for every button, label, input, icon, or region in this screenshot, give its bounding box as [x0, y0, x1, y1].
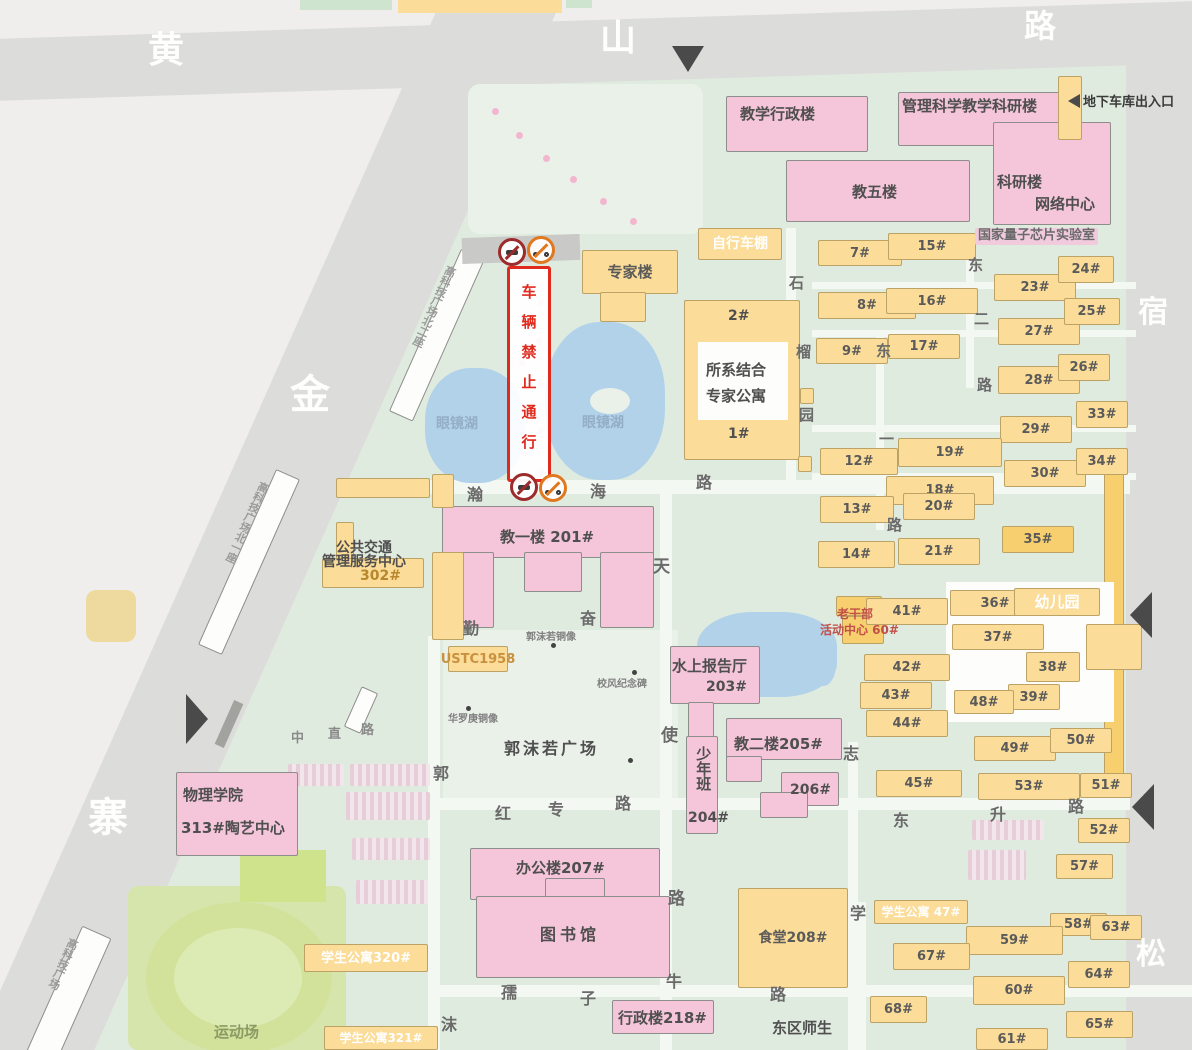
laoganbu-label-1: 老干部 — [837, 608, 873, 622]
dorm-57-label: 57# — [1070, 860, 1099, 873]
bldg-expert-a: 专家楼 — [582, 250, 678, 294]
entrance-plaza — [468, 84, 703, 234]
bldg-label-admin218: 行政楼218# — [618, 1010, 707, 1027]
dorm-68: 68# — [870, 996, 927, 1023]
dorm-26-label: 26# — [1070, 361, 1099, 374]
bldg-ustc1958: USTC1958 — [448, 646, 508, 672]
roadchar-zhi: 志 — [843, 745, 859, 763]
dorm-35-label: 35# — [1024, 533, 1053, 546]
blossom — [516, 132, 523, 139]
dorm-68-label: 68# — [884, 1003, 913, 1016]
bldg-water-hall-stem — [688, 702, 714, 740]
roadchar-lu-hanhai: 路 — [696, 474, 712, 492]
bldg-stu-apt-321: 学生公寓321# — [324, 1026, 438, 1050]
no-motorcycle-icon — [527, 236, 555, 264]
roadchar-yi: 一 — [879, 431, 894, 448]
bldg-label-shaonianban: 少年班 — [694, 746, 711, 791]
blossom — [543, 155, 550, 162]
blob-a — [800, 388, 814, 404]
dorm-64: 64# — [1068, 961, 1130, 988]
dorm-30: 30# — [1004, 460, 1086, 487]
dorm-63: 63# — [1090, 915, 1142, 940]
roadchar-dong3: 东 — [893, 812, 909, 830]
roadchar-shi2: 使 — [661, 727, 678, 747]
roadchar-zhi2: 直 — [328, 728, 341, 743]
road-label-su: 宿 — [1138, 296, 1168, 331]
bldg-stu-apt-47-label: 学生公寓 47# — [882, 906, 961, 918]
dorm-24-label: 24# — [1072, 263, 1101, 276]
strip-top — [1058, 76, 1082, 140]
roadchar-liu: 榴 — [796, 344, 811, 361]
bldg-jiao1-mid — [524, 552, 582, 592]
dorm-61: 61# — [976, 1028, 1048, 1050]
bldg-label-204: 204# — [688, 810, 729, 826]
road-label-lu-top: 路 — [1024, 8, 1056, 45]
bldg-bikeshed: 自行车棚 — [698, 228, 782, 260]
dorm-36-label: 36# — [981, 597, 1010, 610]
court-stripe-3 — [346, 792, 430, 820]
dorm-26: 26# — [1058, 354, 1110, 381]
dorm-20-label: 20# — [925, 500, 954, 513]
dorm-30-label: 30# — [1031, 467, 1060, 480]
road-label-huang: 黄 — [148, 30, 184, 71]
dorm-16-label: 16# — [918, 295, 947, 308]
dorm-48: 48# — [954, 690, 1014, 714]
apt-label-1: 1# — [728, 426, 749, 442]
dorm-8-label: 8# — [857, 299, 877, 312]
roadchar-dong1: 东 — [876, 343, 891, 360]
roadchar-lu-donger: 路 — [977, 377, 992, 394]
bldg-bikeshed-label: 自行车棚 — [712, 237, 768, 251]
dorm-17-label: 17# — [910, 340, 939, 353]
bldg-jiao1-right — [600, 552, 654, 628]
dorm-34: 34# — [1076, 448, 1128, 475]
roadchar-lu-ruziniu: 路 — [770, 986, 786, 1004]
no-motorcycle-icon — [539, 474, 567, 502]
statue-label-hualuogeng: 华罗庚铜像 — [448, 714, 498, 726]
roadchar-fen: 奋 — [580, 610, 596, 628]
dorm-34-label: 34# — [1088, 455, 1117, 468]
dorm-50-label: 50# — [1067, 734, 1096, 747]
no-car-icon — [510, 473, 538, 501]
dorm-52-label: 52# — [1090, 824, 1119, 837]
bldg-label-physics: 物理学院 — [183, 787, 243, 804]
dorm-9-label: 9# — [842, 345, 862, 358]
roadchar-ru: 孺 — [501, 984, 517, 1002]
bldg-302-b — [432, 474, 454, 508]
roadchar-niu: 牛 — [666, 973, 682, 991]
dorm-53: 53# — [978, 773, 1080, 800]
bldg-canteen208-label: 食堂208# — [759, 931, 828, 945]
dorm-65: 65# — [1066, 1011, 1133, 1038]
dorm-42-label: 42# — [893, 661, 922, 674]
dorm-7-label: 7# — [850, 247, 870, 260]
dorm-27-label: 27# — [1025, 325, 1054, 338]
bldg-stu-apt-47: 学生公寓 47# — [874, 900, 968, 924]
roadchar-hong: 红 — [495, 805, 511, 823]
path-dorm-2 — [812, 330, 1136, 337]
bldg-label-302: 302# — [360, 568, 401, 584]
dorm-65-label: 65# — [1085, 1018, 1114, 1031]
dorm-53-label: 53# — [1015, 780, 1044, 793]
sliver-green-1 — [300, 0, 392, 10]
roadchar-lu-hongzhuan: 路 — [615, 795, 631, 813]
roadchar-lu-dongsheng: 路 — [1068, 798, 1084, 816]
bldg-expert-apt-inner — [698, 342, 788, 420]
dorm-23-label: 23# — [1021, 281, 1050, 294]
dorm-13-label: 13# — [843, 503, 872, 516]
dorm-64-label: 64# — [1085, 968, 1114, 981]
court-stripe-6 — [972, 820, 1044, 840]
bldg-physics — [176, 772, 298, 856]
dorm-12-label: 12# — [845, 455, 874, 468]
bldg-library-conn — [545, 878, 605, 898]
wheel-glyph — [544, 252, 549, 257]
roadchar-tian: 天 — [653, 558, 670, 578]
bldg-label-jiao1: 教一楼 201# — [500, 529, 594, 546]
bldg-stu-apt-320-label: 学生公寓320# — [321, 952, 411, 965]
dorm-29-label: 29# — [1022, 423, 1051, 436]
east-district-label: 东区师生 — [772, 1020, 832, 1037]
dorm-51-label: 51# — [1092, 779, 1121, 792]
roadchar-lu-dongyi: 路 — [887, 517, 902, 534]
dorm-14: 14# — [818, 541, 895, 568]
dorm-38-label: 38# — [1039, 661, 1068, 674]
bldg-label-research: 科研楼 — [997, 174, 1042, 191]
dorm-43-label: 43# — [882, 689, 911, 702]
dorm-67-label: 67# — [917, 950, 946, 963]
basketball-courts — [240, 850, 326, 902]
dorm-44-label: 44# — [893, 717, 922, 730]
dorm-49: 49# — [974, 736, 1056, 761]
bldg-ustc1958-label: USTC1958 — [441, 653, 516, 666]
dorm-28-label: 28# — [1025, 374, 1054, 387]
lake-label-east: 眼镜湖 — [582, 415, 624, 431]
no-car-icon — [498, 238, 526, 266]
lake-label-west: 眼镜湖 — [436, 416, 478, 432]
court-stripe-2 — [350, 764, 430, 786]
apt-label-2: 2# — [728, 308, 749, 324]
bldg-canteen208: 食堂208# — [738, 888, 848, 988]
court-stripe-7 — [968, 850, 1026, 880]
dorm-41: 41# — [866, 598, 948, 625]
roadchar-lu-zhongzhi: 路 — [361, 724, 374, 739]
sports-field-label: 运动场 — [214, 1024, 259, 1041]
dorm-21-label: 21# — [925, 545, 954, 558]
dorm-12: 12# — [820, 448, 898, 475]
dorm-35: 35# — [1002, 526, 1074, 553]
bldg-label-206: 206# — [790, 782, 831, 798]
dorm-61-label: 61# — [998, 1033, 1027, 1046]
dorm-43: 43# — [860, 682, 932, 709]
dorm-51: 51# — [1080, 773, 1132, 798]
dorm-39-label: 39# — [1020, 691, 1049, 704]
bldg-label-mgmt-science: 管理科学教学科研楼 — [902, 98, 1037, 115]
path-xue — [856, 902, 866, 1050]
road-label-shan: 山 — [600, 18, 636, 59]
dorm-57: 57# — [1056, 854, 1113, 879]
dorm-63-label: 63# — [1102, 921, 1131, 934]
roadchar-lu-tianshi: 路 — [668, 890, 685, 910]
roadchar-yuan: 园 — [799, 407, 814, 424]
bldg-label-203: 203# — [706, 679, 747, 695]
laoganbu-label-2: 活动中心 60# — [820, 624, 899, 638]
dorm-38: 38# — [1026, 652, 1080, 682]
bldg-label-network: 网络中心 — [1035, 196, 1095, 213]
bldg-label-office207: 办公楼207# — [516, 860, 605, 877]
track-infield — [174, 928, 302, 1028]
bldg-jiao2-wing — [726, 756, 762, 782]
blossom — [600, 198, 607, 205]
sliver-yellow — [398, 0, 562, 13]
bldg-label-library: 图书馆 — [540, 926, 600, 944]
dorm-58-label: 58# — [1064, 918, 1093, 931]
dorm-60-label: 60# — [1005, 984, 1034, 997]
dorm-50: 50# — [1050, 728, 1112, 753]
sliver-green-2 — [566, 0, 592, 8]
dorm-59: 59# — [966, 926, 1063, 955]
dorm-60: 60# — [973, 976, 1065, 1005]
bldg-stu-apt-320: 学生公寓320# — [304, 944, 428, 972]
roadchar-dong2: 东 — [968, 257, 983, 274]
susong-road — [1126, 52, 1192, 1050]
bldg-302-a — [336, 478, 430, 498]
dorm-33-label: 33# — [1088, 408, 1117, 421]
bldg-stu-apt-321-label: 学生公寓321# — [339, 1032, 422, 1044]
roadchar-zhong: 中 — [291, 732, 304, 747]
statue-dot — [551, 643, 556, 648]
blossom — [570, 176, 577, 183]
campus-map: 专家楼自行车棚食堂208#USTC195836#幼儿园37#38#39#48#7… — [0, 0, 1192, 1050]
dorm-19: 19# — [898, 438, 1002, 467]
dorm-29: 29# — [1000, 416, 1072, 443]
dorm-49-label: 49# — [1001, 742, 1030, 755]
plaza-label-guomoruo: 郭沫若广场 — [504, 740, 599, 758]
dorm-33: 33# — [1076, 401, 1128, 428]
dorm-41-label: 41# — [893, 605, 922, 618]
small-pond — [808, 638, 836, 686]
dorm-16: 16# — [886, 288, 978, 314]
gate-marker-north — [672, 46, 704, 72]
dorm-45-label: 45# — [905, 777, 934, 790]
statue-dot — [466, 706, 471, 711]
dorm-15-label: 15# — [918, 240, 947, 253]
roadchar-zi: 子 — [580, 990, 596, 1008]
dorm-24: 24# — [1058, 256, 1114, 283]
dorm-15: 15# — [888, 233, 976, 260]
bldg-expert-a-label: 专家楼 — [607, 265, 652, 280]
dorm-39: 39# — [1008, 684, 1060, 710]
gate-marker-west — [186, 694, 208, 744]
no-vehicle-sign: 车辆禁止通行 — [507, 266, 551, 482]
dorm-19-label: 19# — [936, 446, 965, 459]
quantum-lab-label: 国家量子芯片实验室 — [975, 228, 1098, 245]
bldg-label-water-hall: 水上报告厅 — [672, 658, 747, 675]
statue-dot — [632, 670, 637, 675]
road-label-zhai: 寨 — [88, 795, 128, 841]
statue-dot — [628, 758, 633, 763]
blossom — [630, 218, 637, 225]
lake-island — [590, 388, 630, 414]
court-stripe-5 — [356, 880, 428, 904]
bldg-label-jiao5: 教五楼 — [852, 184, 897, 201]
blob-b — [798, 456, 812, 472]
apt-label-line2: 专家公寓 — [706, 388, 766, 405]
bldg-label-jiao2: 教二楼205# — [734, 736, 823, 753]
statue-label-xiaofeng: 校风纪念碑 — [597, 679, 647, 691]
blossom — [492, 108, 499, 115]
dorm-37-label: 37# — [984, 631, 1013, 644]
bldg-label-313: 313#陶艺中心 — [181, 820, 285, 837]
roadchar-han: 瀚 — [467, 486, 483, 504]
apt-label-line1: 所系结合 — [706, 362, 766, 379]
gate-marker-east-1 — [1130, 592, 1152, 638]
roadchar-qin: 勤 — [463, 620, 479, 638]
dorm-48-label: 48# — [970, 696, 999, 709]
roadchar-er: 二 — [974, 311, 989, 328]
no-vehicle-sign-text: 车辆禁止通行 — [519, 284, 540, 464]
dorm-37: 37# — [952, 624, 1044, 650]
dorm-14-label: 14# — [842, 548, 871, 561]
dorm-44: 44# — [866, 710, 948, 737]
roadchar-shi: 石 — [789, 275, 804, 292]
wheel-glyph — [556, 490, 561, 495]
statue-label-guomoruo: 郭沫若铜像 — [526, 632, 576, 644]
dorm-25-label: 25# — [1078, 305, 1107, 318]
dorm-20: 20# — [903, 493, 975, 520]
gate-marker-east-2 — [1132, 784, 1154, 830]
roadchar-xue: 学 — [850, 905, 866, 923]
dorm-45: 45# — [876, 770, 962, 797]
roadchar-guo: 郭 — [433, 765, 449, 783]
dorm-21: 21# — [898, 538, 980, 565]
dorm-17: 17# — [888, 334, 960, 359]
dorm-25: 25# — [1064, 298, 1120, 325]
court-stripe-4 — [352, 838, 430, 860]
bldg-302-e — [432, 552, 464, 640]
dorm-59-label: 59# — [1000, 934, 1029, 947]
road-label-jin: 金 — [290, 372, 330, 418]
dorm-42: 42# — [864, 654, 950, 681]
roadchar-hai: 海 — [590, 483, 606, 501]
road-label-song: 松 — [1136, 938, 1166, 973]
dorm-52: 52# — [1078, 818, 1130, 843]
bldg-outside-west — [86, 590, 136, 642]
parking-entrance-label: 地下车库出入口 — [1083, 96, 1174, 111]
bldg-label-teach-admin: 教学行政楼 — [740, 106, 815, 123]
parking-arrow — [1068, 94, 1080, 108]
dorm-67: 67# — [893, 943, 970, 970]
roadchar-sheng: 升 — [990, 806, 1006, 824]
kindergarten-bldg-label: 幼儿园 — [1034, 595, 1079, 610]
kindergarten-bldg: 幼儿园 — [1014, 588, 1100, 616]
bldg-expert-b — [600, 292, 646, 322]
dorm-13: 13# — [820, 496, 894, 523]
roadchar-mo: 沫 — [441, 1016, 457, 1034]
roadchar-zhuan: 专 — [548, 801, 564, 819]
